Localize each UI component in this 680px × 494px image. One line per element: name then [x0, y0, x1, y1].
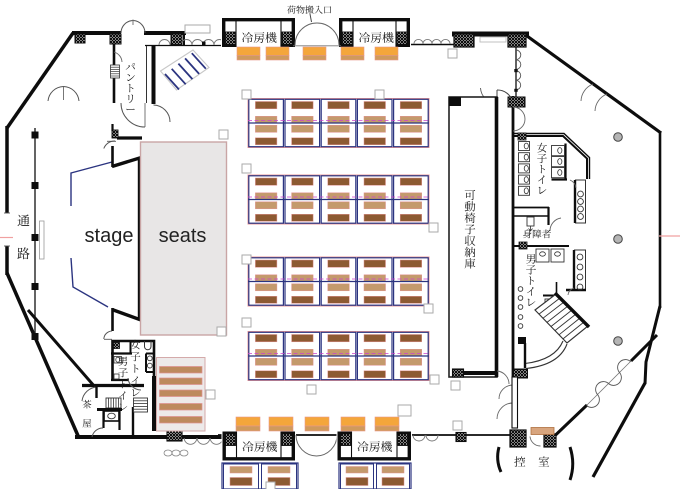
svg-text:stage: stage	[85, 225, 134, 247]
svg-text:seats: seats	[159, 225, 207, 247]
